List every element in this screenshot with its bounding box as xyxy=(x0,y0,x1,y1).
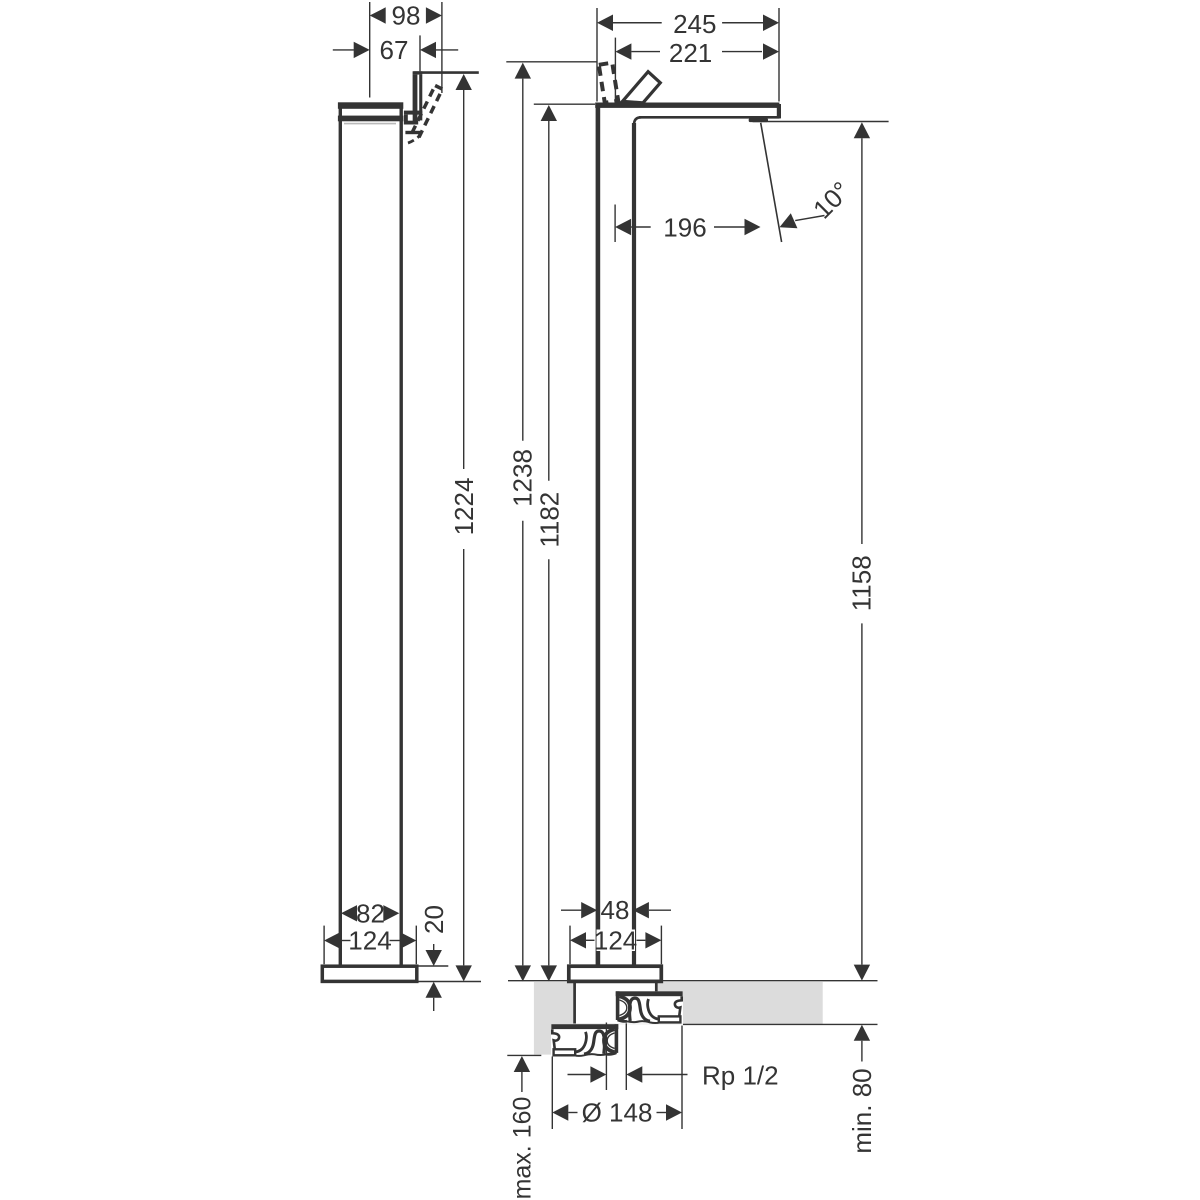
svg-text:245: 245 xyxy=(673,9,716,39)
svg-text:82: 82 xyxy=(356,898,385,928)
svg-text:1238: 1238 xyxy=(508,449,538,507)
svg-text:Ø 148: Ø 148 xyxy=(582,1098,653,1128)
svg-text:Rp 1/2: Rp 1/2 xyxy=(702,1061,779,1091)
svg-text:1182: 1182 xyxy=(534,492,564,548)
svg-text:221: 221 xyxy=(669,38,712,68)
svg-text:124: 124 xyxy=(594,925,637,955)
svg-text:1224: 1224 xyxy=(449,478,479,536)
svg-text:20: 20 xyxy=(419,905,449,934)
svg-text:98: 98 xyxy=(392,1,421,31)
svg-text:124: 124 xyxy=(348,926,391,956)
svg-text:1158: 1158 xyxy=(847,555,877,611)
svg-text:67: 67 xyxy=(380,35,409,65)
svg-text:min. 80: min. 80 xyxy=(847,1068,877,1153)
svg-text:max. 160: max. 160 xyxy=(508,1097,536,1200)
svg-text:196: 196 xyxy=(663,213,706,243)
svg-text:48: 48 xyxy=(601,895,630,925)
